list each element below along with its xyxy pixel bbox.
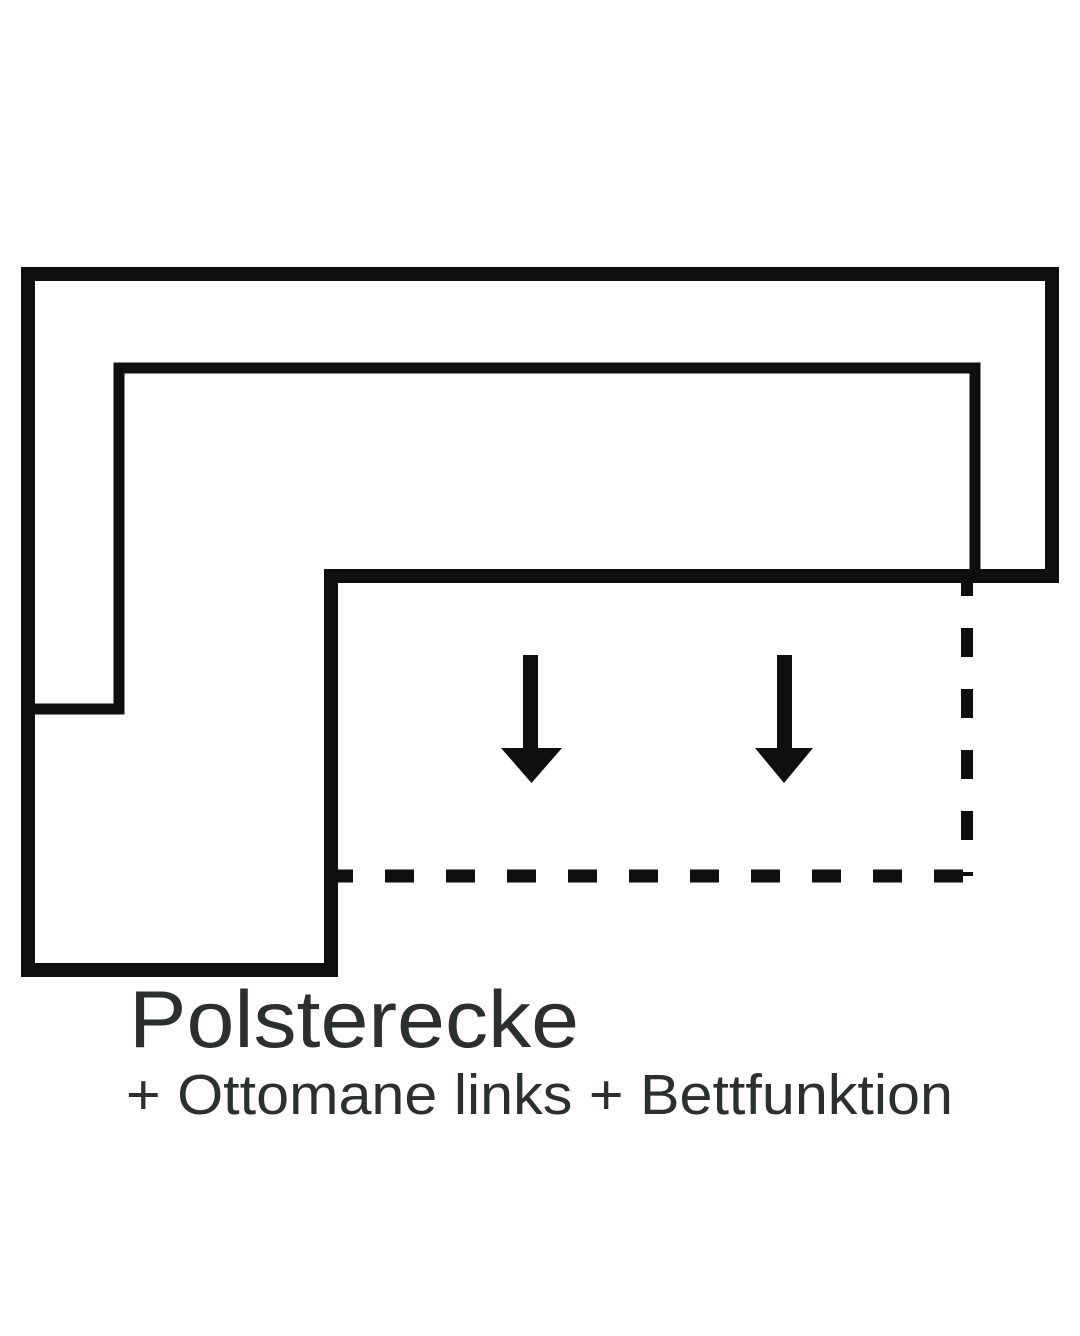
svg-text:+ Ottomane links + Bettfunktio: + Ottomane links + Bettfunktion (126, 1063, 953, 1127)
svg-text:Polsterecke: Polsterecke (129, 975, 579, 1065)
